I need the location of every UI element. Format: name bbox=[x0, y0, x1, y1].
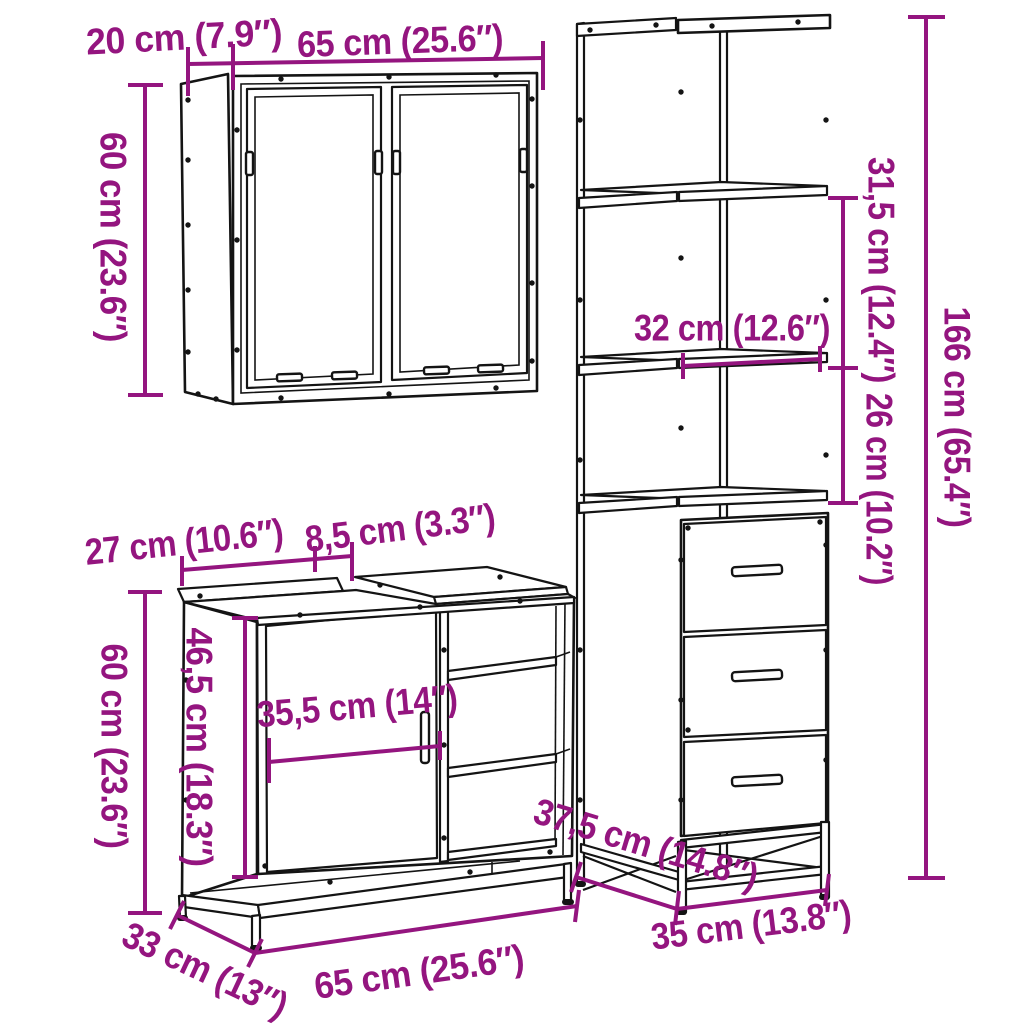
diagram-canvas: 20 cm (7.9″) 65 cm (25.6″) 60 cm (23.6″)… bbox=[0, 0, 1024, 1024]
tall-cabinet-rear-left-post bbox=[577, 23, 584, 884]
left-door-handle-icon bbox=[375, 151, 382, 174]
vanity-top-notch-label: 8,5 cm (3.3″) bbox=[303, 496, 498, 560]
tall-cabinet-side-top-rail bbox=[577, 18, 676, 36]
right-door-handle-icon bbox=[393, 151, 400, 174]
wall-cabinet-right-door bbox=[392, 85, 527, 380]
vanity-inner-height-label: 46,5 cm (18.3″) bbox=[179, 628, 220, 867]
tall-middle-section-label: 26 cm (10.2″) bbox=[859, 393, 900, 585]
dim-vanity-depth: 33 cm (13″) bbox=[116, 901, 294, 1024]
vanity-width-label: 65 cm (25.6″) bbox=[312, 937, 527, 1007]
furniture-dimension-diagram: 20 cm (7.9″) 65 cm (25.6″) 60 cm (23.6″)… bbox=[0, 0, 1024, 1024]
vanity-height-label: 60 cm (23.6″) bbox=[94, 644, 135, 849]
dim-wall-height: 60 cm (23.6″) bbox=[93, 85, 164, 395]
wall-cabinet-drawing bbox=[181, 72, 537, 404]
left-door-hinge-icon bbox=[246, 152, 253, 175]
tall-cabinet-drawing bbox=[575, 15, 830, 915]
tall-upper-section-label: 31,5 cm (12.4″) bbox=[861, 157, 902, 383]
dim-vanity-inner-height: 46,5 cm (18.3″) bbox=[179, 618, 259, 877]
right-door-slot-icon bbox=[424, 367, 449, 375]
vanity-front-right-leg bbox=[564, 863, 571, 903]
tall-shelf-width-label: 32 cm (12.6″) bbox=[634, 308, 830, 349]
dim-tall-sections: 31,5 cm (12.4″) 26 cm (10.2″) bbox=[828, 157, 902, 585]
drawer-2-handle-icon bbox=[732, 670, 782, 682]
tall-height-label: 166 cm (65.4″) bbox=[937, 307, 978, 528]
tall-cabinet-shelf-1 bbox=[579, 182, 827, 208]
vanity-door bbox=[266, 610, 437, 872]
drawer-3-handle-icon bbox=[732, 775, 782, 787]
wall-cabinet-left-door bbox=[247, 87, 381, 388]
right-door-hinge-icon bbox=[520, 149, 527, 172]
wall-height-label: 60 cm (23.6″) bbox=[93, 132, 134, 342]
right-door-slot-icon bbox=[478, 365, 503, 373]
left-door-slot-icon bbox=[332, 372, 357, 380]
vanity-cabinet-drawing bbox=[177, 567, 575, 951]
drawer-1-handle-icon bbox=[732, 565, 782, 577]
left-door-slot-icon bbox=[277, 374, 302, 382]
wall-width-label: 65 cm (25.6″) bbox=[296, 17, 503, 65]
dim-tall-height: 166 cm (65.4″) bbox=[908, 17, 978, 878]
tall-cabinet-drawer-2 bbox=[684, 630, 826, 737]
tall-cabinet-front-top-rail bbox=[678, 15, 830, 33]
tall-cabinet-shelf-3 bbox=[579, 487, 827, 513]
wall-depth-label: 20 cm (7.9″) bbox=[85, 11, 283, 62]
dim-vanity-height: 60 cm (23.6″) bbox=[94, 592, 163, 913]
